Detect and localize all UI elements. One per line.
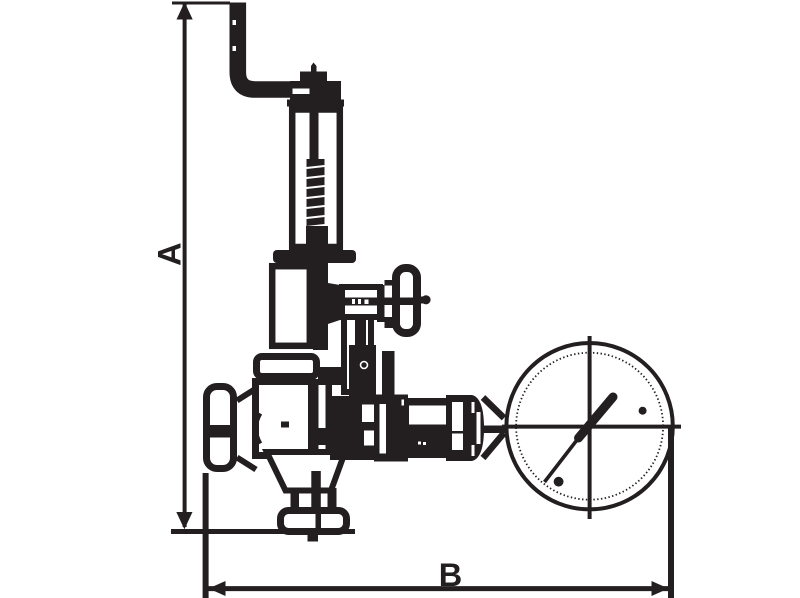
svg-text:A: A bbox=[151, 242, 187, 265]
svg-text:B: B bbox=[439, 557, 462, 593]
